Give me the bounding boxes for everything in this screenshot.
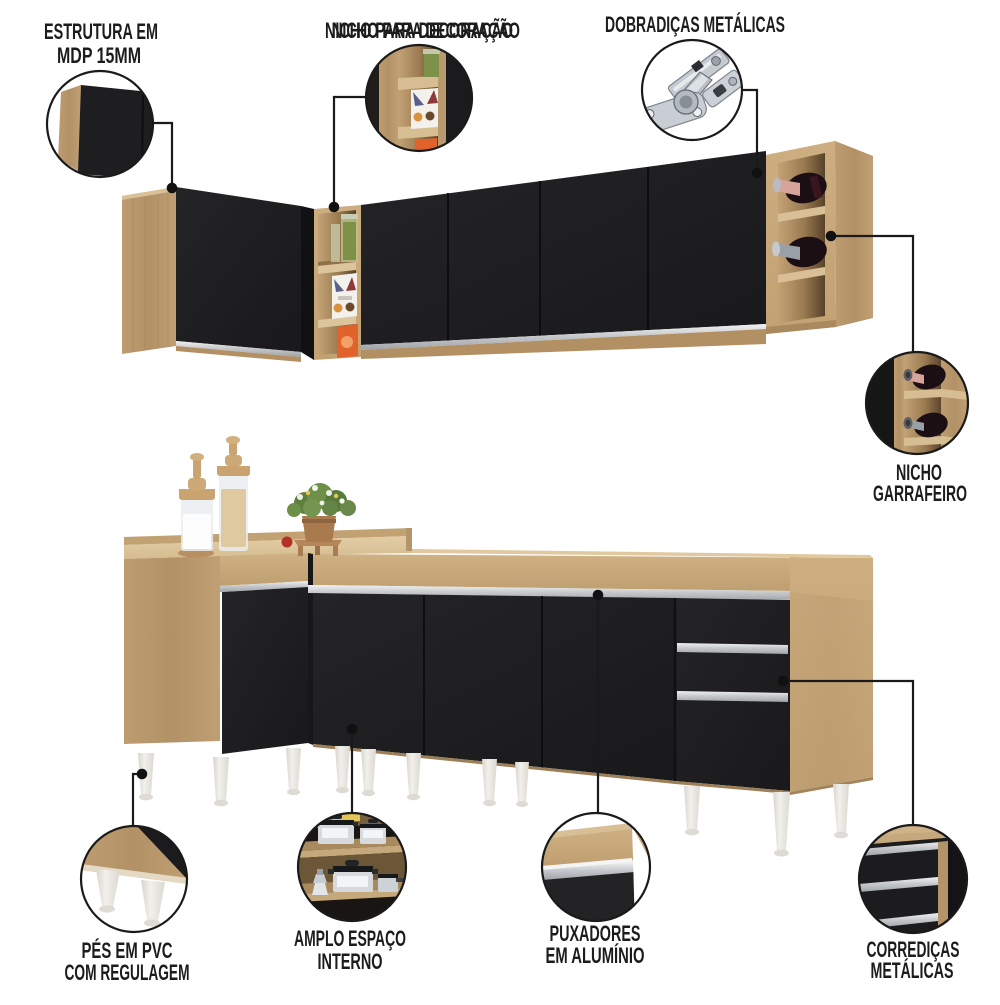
- svg-text:ESTRUTURA EM: ESTRUTURA EM: [44, 19, 158, 44]
- svg-text:AMPLO ESPAÇO: AMPLO ESPAÇO: [294, 926, 406, 951]
- svg-text:EM ALUMÍNIO: EM ALUMÍNIO: [546, 943, 645, 968]
- svg-text:GARRAFEIRO: GARRAFEIRO: [873, 481, 967, 506]
- svg-text:DOBRADIÇAS METÁLICAS: DOBRADIÇAS METÁLICAS: [605, 12, 785, 37]
- svg-text:METÁLICAS: METÁLICAS: [871, 958, 954, 983]
- svg-text:COM REGULAGEM: COM REGULAGEM: [65, 960, 190, 985]
- svg-text:INTERNO: INTERNO: [318, 949, 383, 974]
- svg-text:NICHO PARA DECORAÇÃO: NICHO PARA DECORAÇÃO: [332, 18, 520, 43]
- svg-text:MDP 15MM: MDP 15MM: [57, 43, 141, 68]
